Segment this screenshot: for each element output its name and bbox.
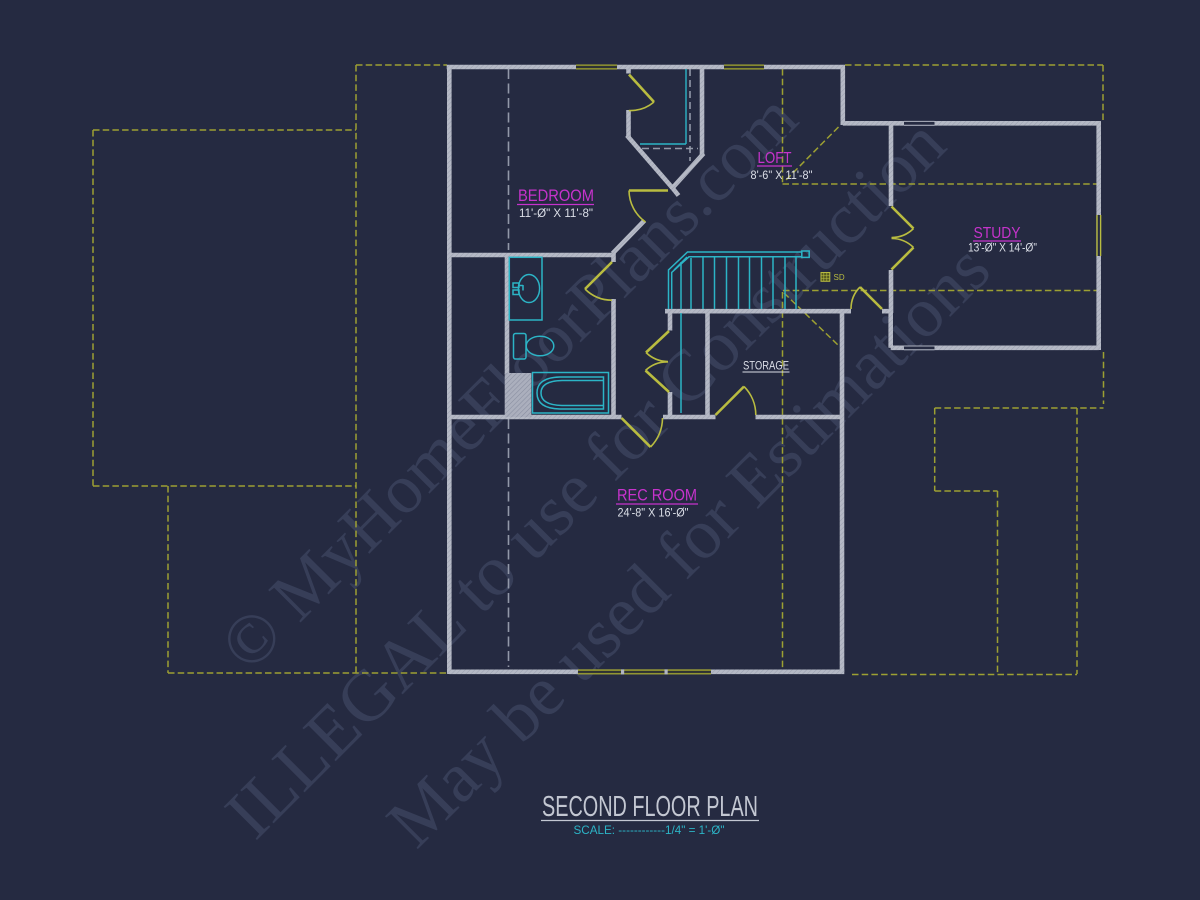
svg-text:SECOND FLOOR PLAN: SECOND FLOOR PLAN <box>542 791 758 823</box>
svg-text:REC ROOM: REC ROOM <box>617 487 697 505</box>
svg-text:SCALE: ------------1/4" = 1'-Ø: SCALE: ------------1/4" = 1'-Ø" <box>574 823 725 837</box>
svg-text:STUDY: STUDY <box>974 225 1021 242</box>
svg-text:BEDROOM: BEDROOM <box>518 186 594 205</box>
svg-text:SD: SD <box>834 273 845 282</box>
svg-text:LOFT: LOFT <box>758 150 792 167</box>
svg-text:13'-Ø" X 14'-Ø": 13'-Ø" X 14'-Ø" <box>968 243 1037 255</box>
svg-text:8'-6" X 11'-8": 8'-6" X 11'-8" <box>751 170 813 182</box>
svg-text:24'-8" X 16'-Ø": 24'-8" X 16'-Ø" <box>618 508 689 520</box>
svg-text:STORAGE: STORAGE <box>743 359 789 373</box>
svg-text:11'-Ø" X 11'-8": 11'-Ø" X 11'-8" <box>519 208 593 220</box>
